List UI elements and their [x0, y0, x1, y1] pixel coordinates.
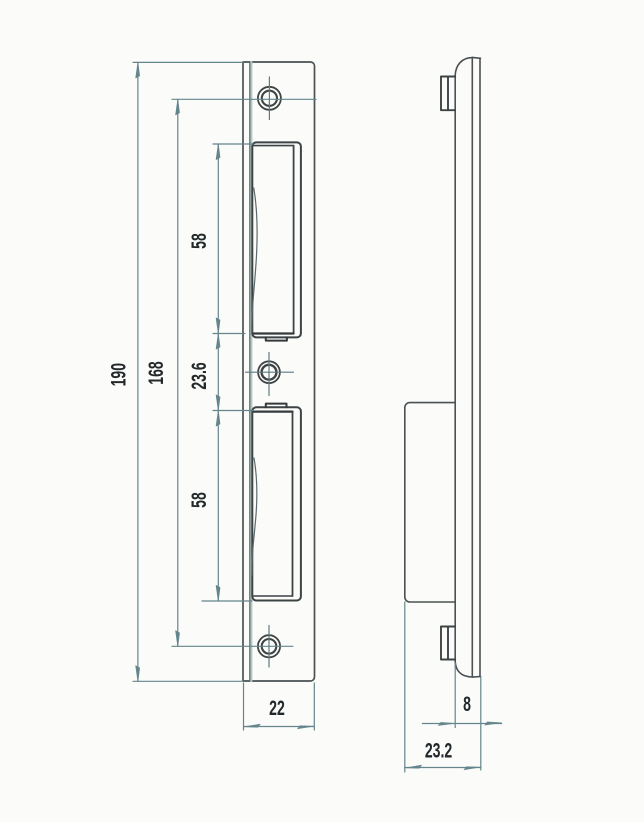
svg-text:190: 190 — [107, 363, 130, 387]
svg-text:58: 58 — [187, 233, 210, 249]
svg-text:58: 58 — [187, 492, 210, 508]
svg-text:8: 8 — [463, 692, 471, 715]
svg-text:23.2: 23.2 — [425, 739, 452, 762]
svg-text:22: 22 — [269, 696, 285, 719]
svg-text:23.6: 23.6 — [187, 362, 210, 389]
svg-text:168: 168 — [144, 361, 167, 385]
